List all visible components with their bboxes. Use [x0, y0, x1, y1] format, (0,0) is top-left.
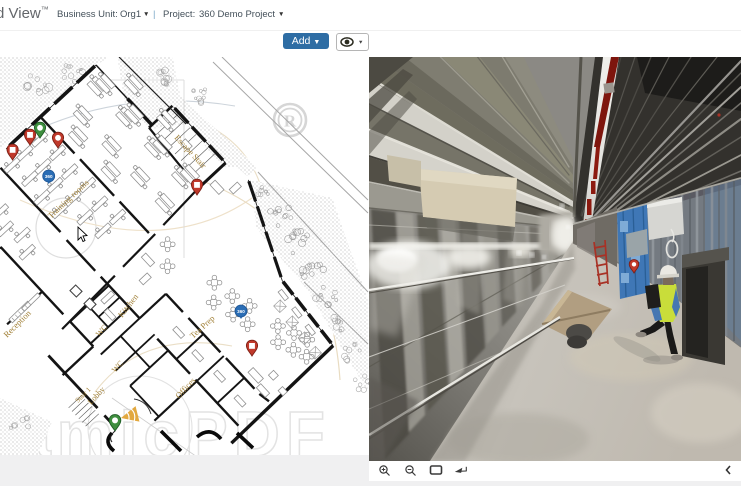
svg-text:Training rooms: Training rooms: [46, 177, 91, 220]
svg-text:R: R: [284, 112, 297, 131]
svg-text:360: 360: [45, 174, 53, 179]
svg-text:360: 360: [237, 309, 245, 314]
svg-text:WC: WC: [110, 359, 125, 375]
svg-text:Offices: Offices: [173, 375, 197, 400]
